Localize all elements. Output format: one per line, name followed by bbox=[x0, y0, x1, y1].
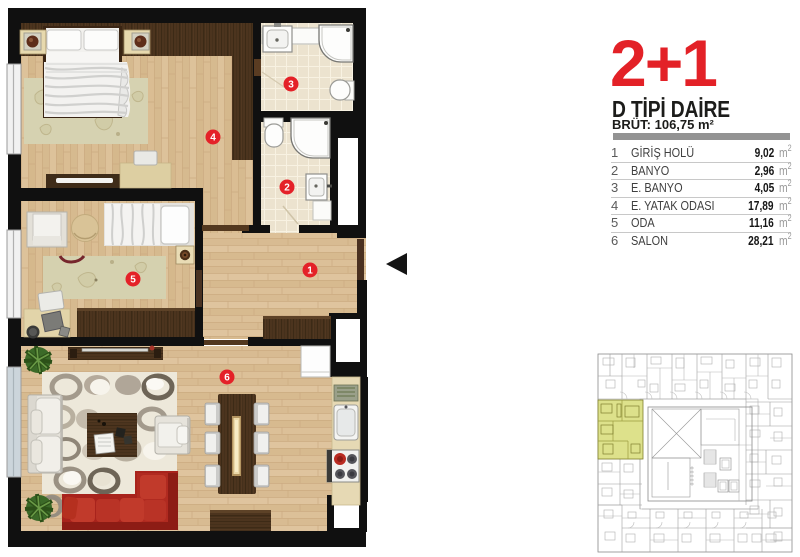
svg-text:2: 2 bbox=[284, 183, 290, 194]
svg-text:4: 4 bbox=[210, 133, 216, 144]
svg-text:5: 5 bbox=[130, 275, 136, 286]
svg-text:3: 3 bbox=[288, 80, 294, 91]
svg-text:1: 1 bbox=[307, 266, 313, 277]
svg-text:6: 6 bbox=[224, 373, 230, 384]
